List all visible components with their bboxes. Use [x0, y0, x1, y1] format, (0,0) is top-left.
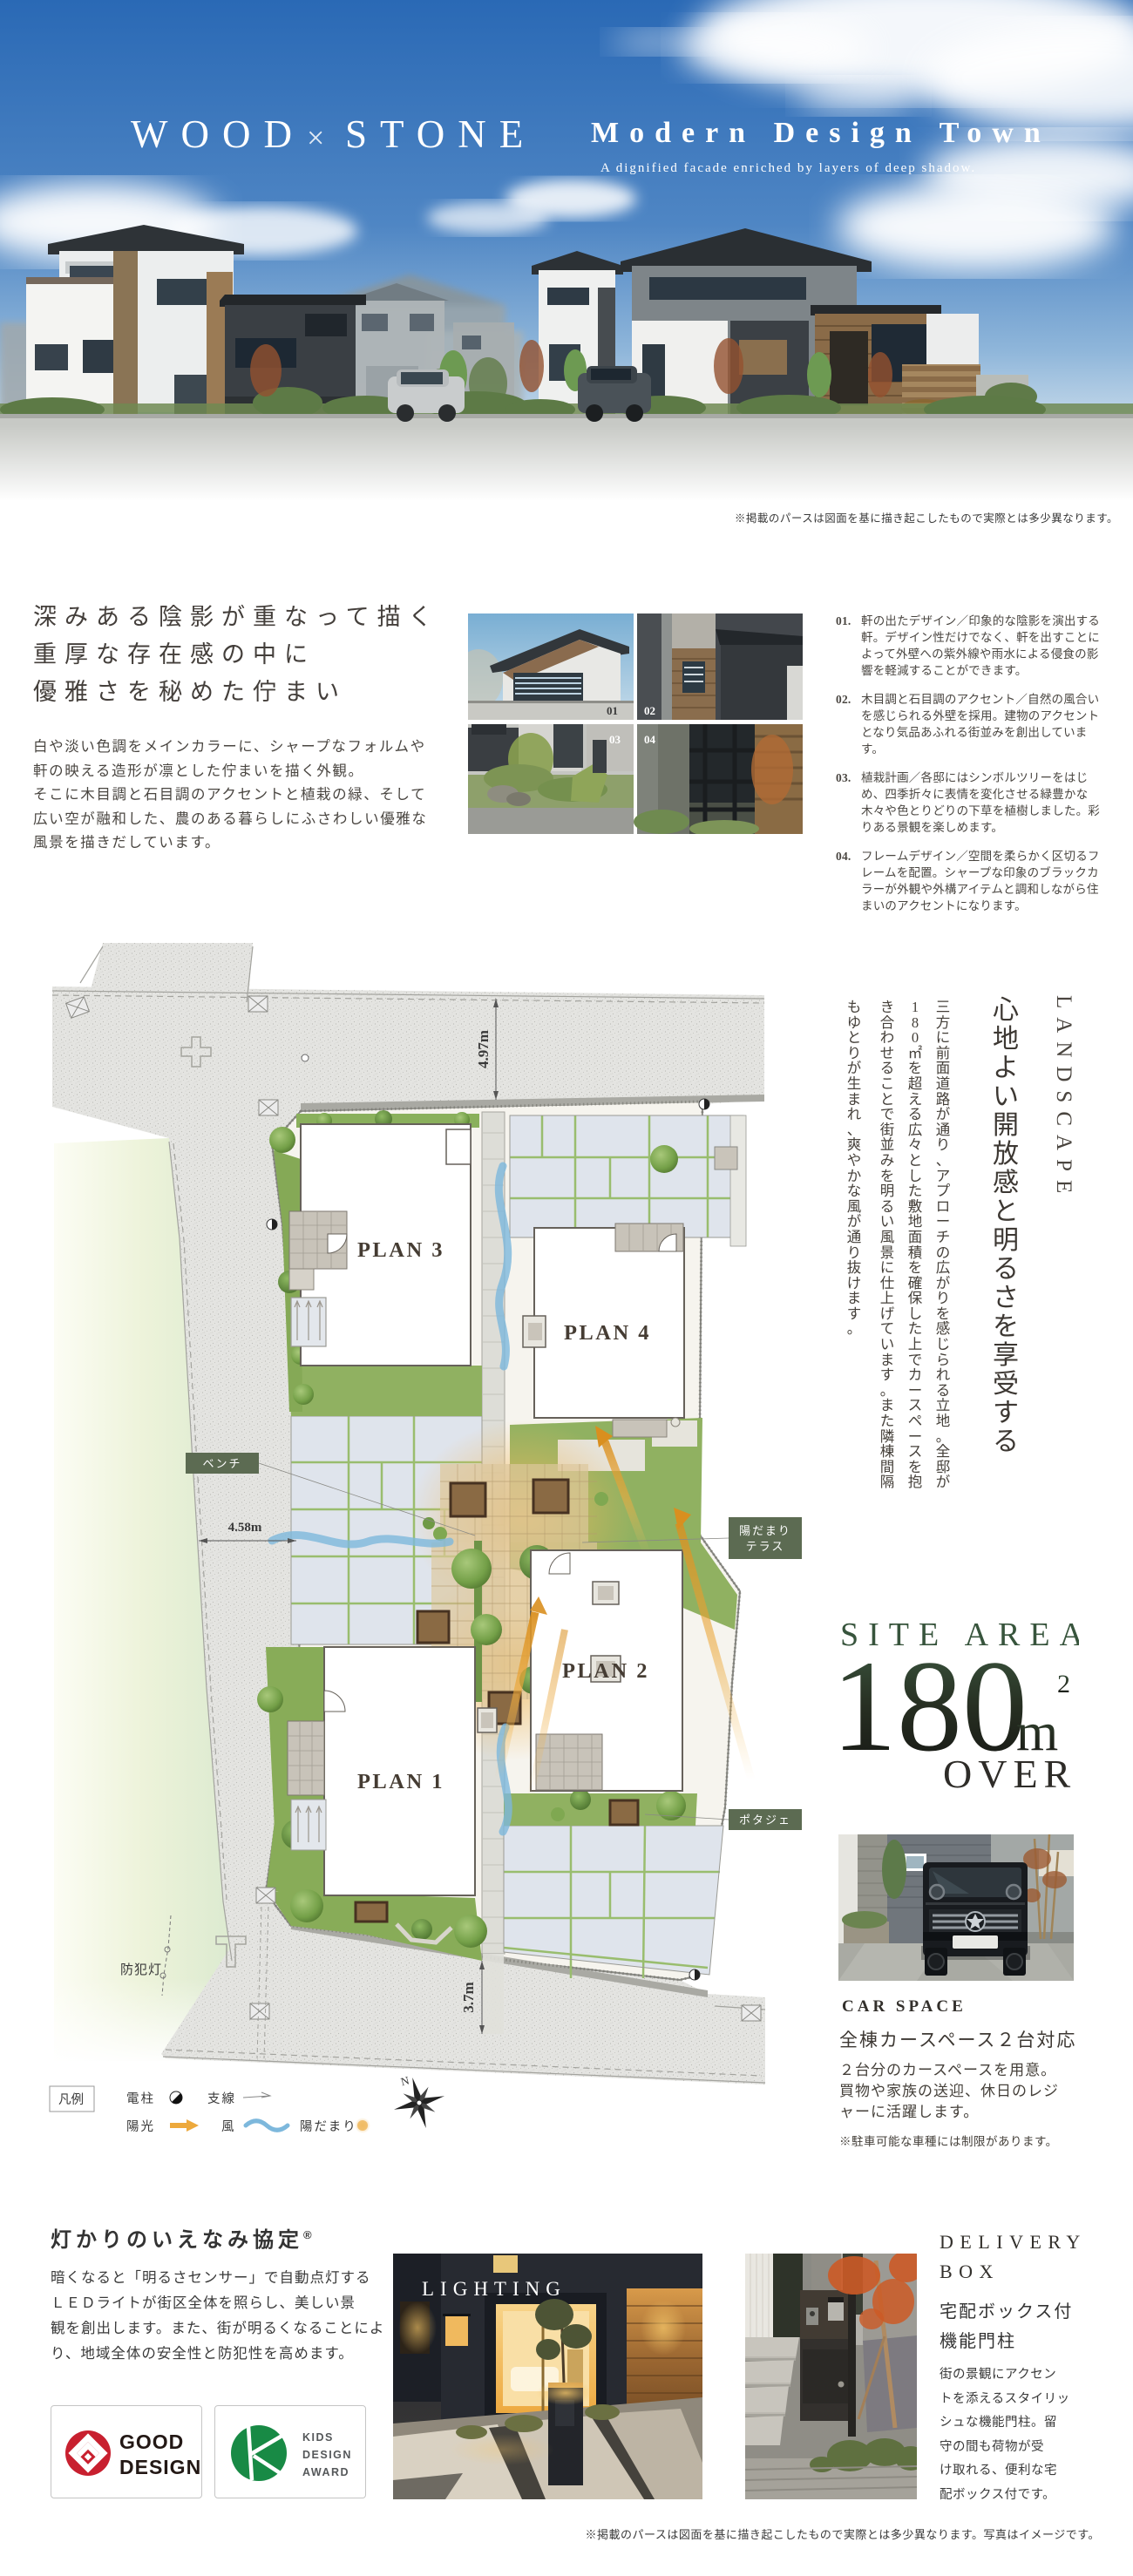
svg-text:陽だまり: 陽だまり — [739, 1524, 791, 1537]
svg-text:ベンチ: ベンチ — [202, 1457, 241, 1470]
svg-text:DESIGN: DESIGN — [302, 2449, 352, 2461]
svg-text:01: 01 — [607, 704, 618, 717]
svg-text:STONE: STONE — [345, 112, 536, 156]
svg-text:A dignified facade enriched by: A dignified facade enriched by layers of… — [600, 161, 976, 175]
svg-text:PLAN 2: PLAN 2 — [562, 1659, 649, 1683]
svg-text:LIGHTING: LIGHTING — [422, 2278, 566, 2300]
svg-text:PLAN 4: PLAN 4 — [564, 1321, 651, 1345]
svg-text:電柱: 電柱 — [126, 2091, 155, 2106]
svg-text:Modern Design Town: Modern Design Town — [591, 117, 1051, 149]
svg-text:03: 03 — [609, 733, 621, 746]
svg-text:防犯灯: 防犯灯 — [120, 1963, 162, 1977]
svg-text:支線: 支線 — [207, 2091, 236, 2106]
svg-text:4.58m: 4.58m — [228, 1521, 262, 1535]
svg-text:3.7m: 3.7m — [460, 1982, 477, 2012]
svg-text:ポタジェ: ポタジェ — [739, 1813, 791, 1827]
svg-text:WOOD: WOOD — [131, 112, 305, 156]
svg-text:AWARD: AWARD — [302, 2466, 349, 2478]
svg-text:凡例: 凡例 — [58, 2092, 84, 2107]
svg-text:2: 2 — [1057, 1670, 1070, 1698]
svg-text:陽光: 陽光 — [126, 2119, 155, 2134]
svg-text:テラス: テラス — [746, 1540, 785, 1553]
svg-text:02: 02 — [644, 704, 655, 717]
svg-text:04: 04 — [644, 733, 656, 746]
svg-text:N: N — [399, 2073, 411, 2088]
svg-text:4.97m: 4.97m — [475, 1030, 492, 1068]
svg-text:PLAN 3: PLAN 3 — [357, 1238, 444, 1262]
svg-text:DESIGN: DESIGN — [119, 2456, 201, 2478]
svg-text:OVER: OVER — [943, 1752, 1076, 1796]
svg-text:×: × — [307, 120, 324, 155]
svg-text:KIDS: KIDS — [302, 2431, 334, 2444]
svg-text:風: 風 — [221, 2120, 234, 2134]
svg-text:陽だまり: 陽だまり — [300, 2119, 357, 2134]
svg-text:PLAN 1: PLAN 1 — [357, 1770, 444, 1793]
svg-text:GOOD: GOOD — [119, 2430, 184, 2453]
